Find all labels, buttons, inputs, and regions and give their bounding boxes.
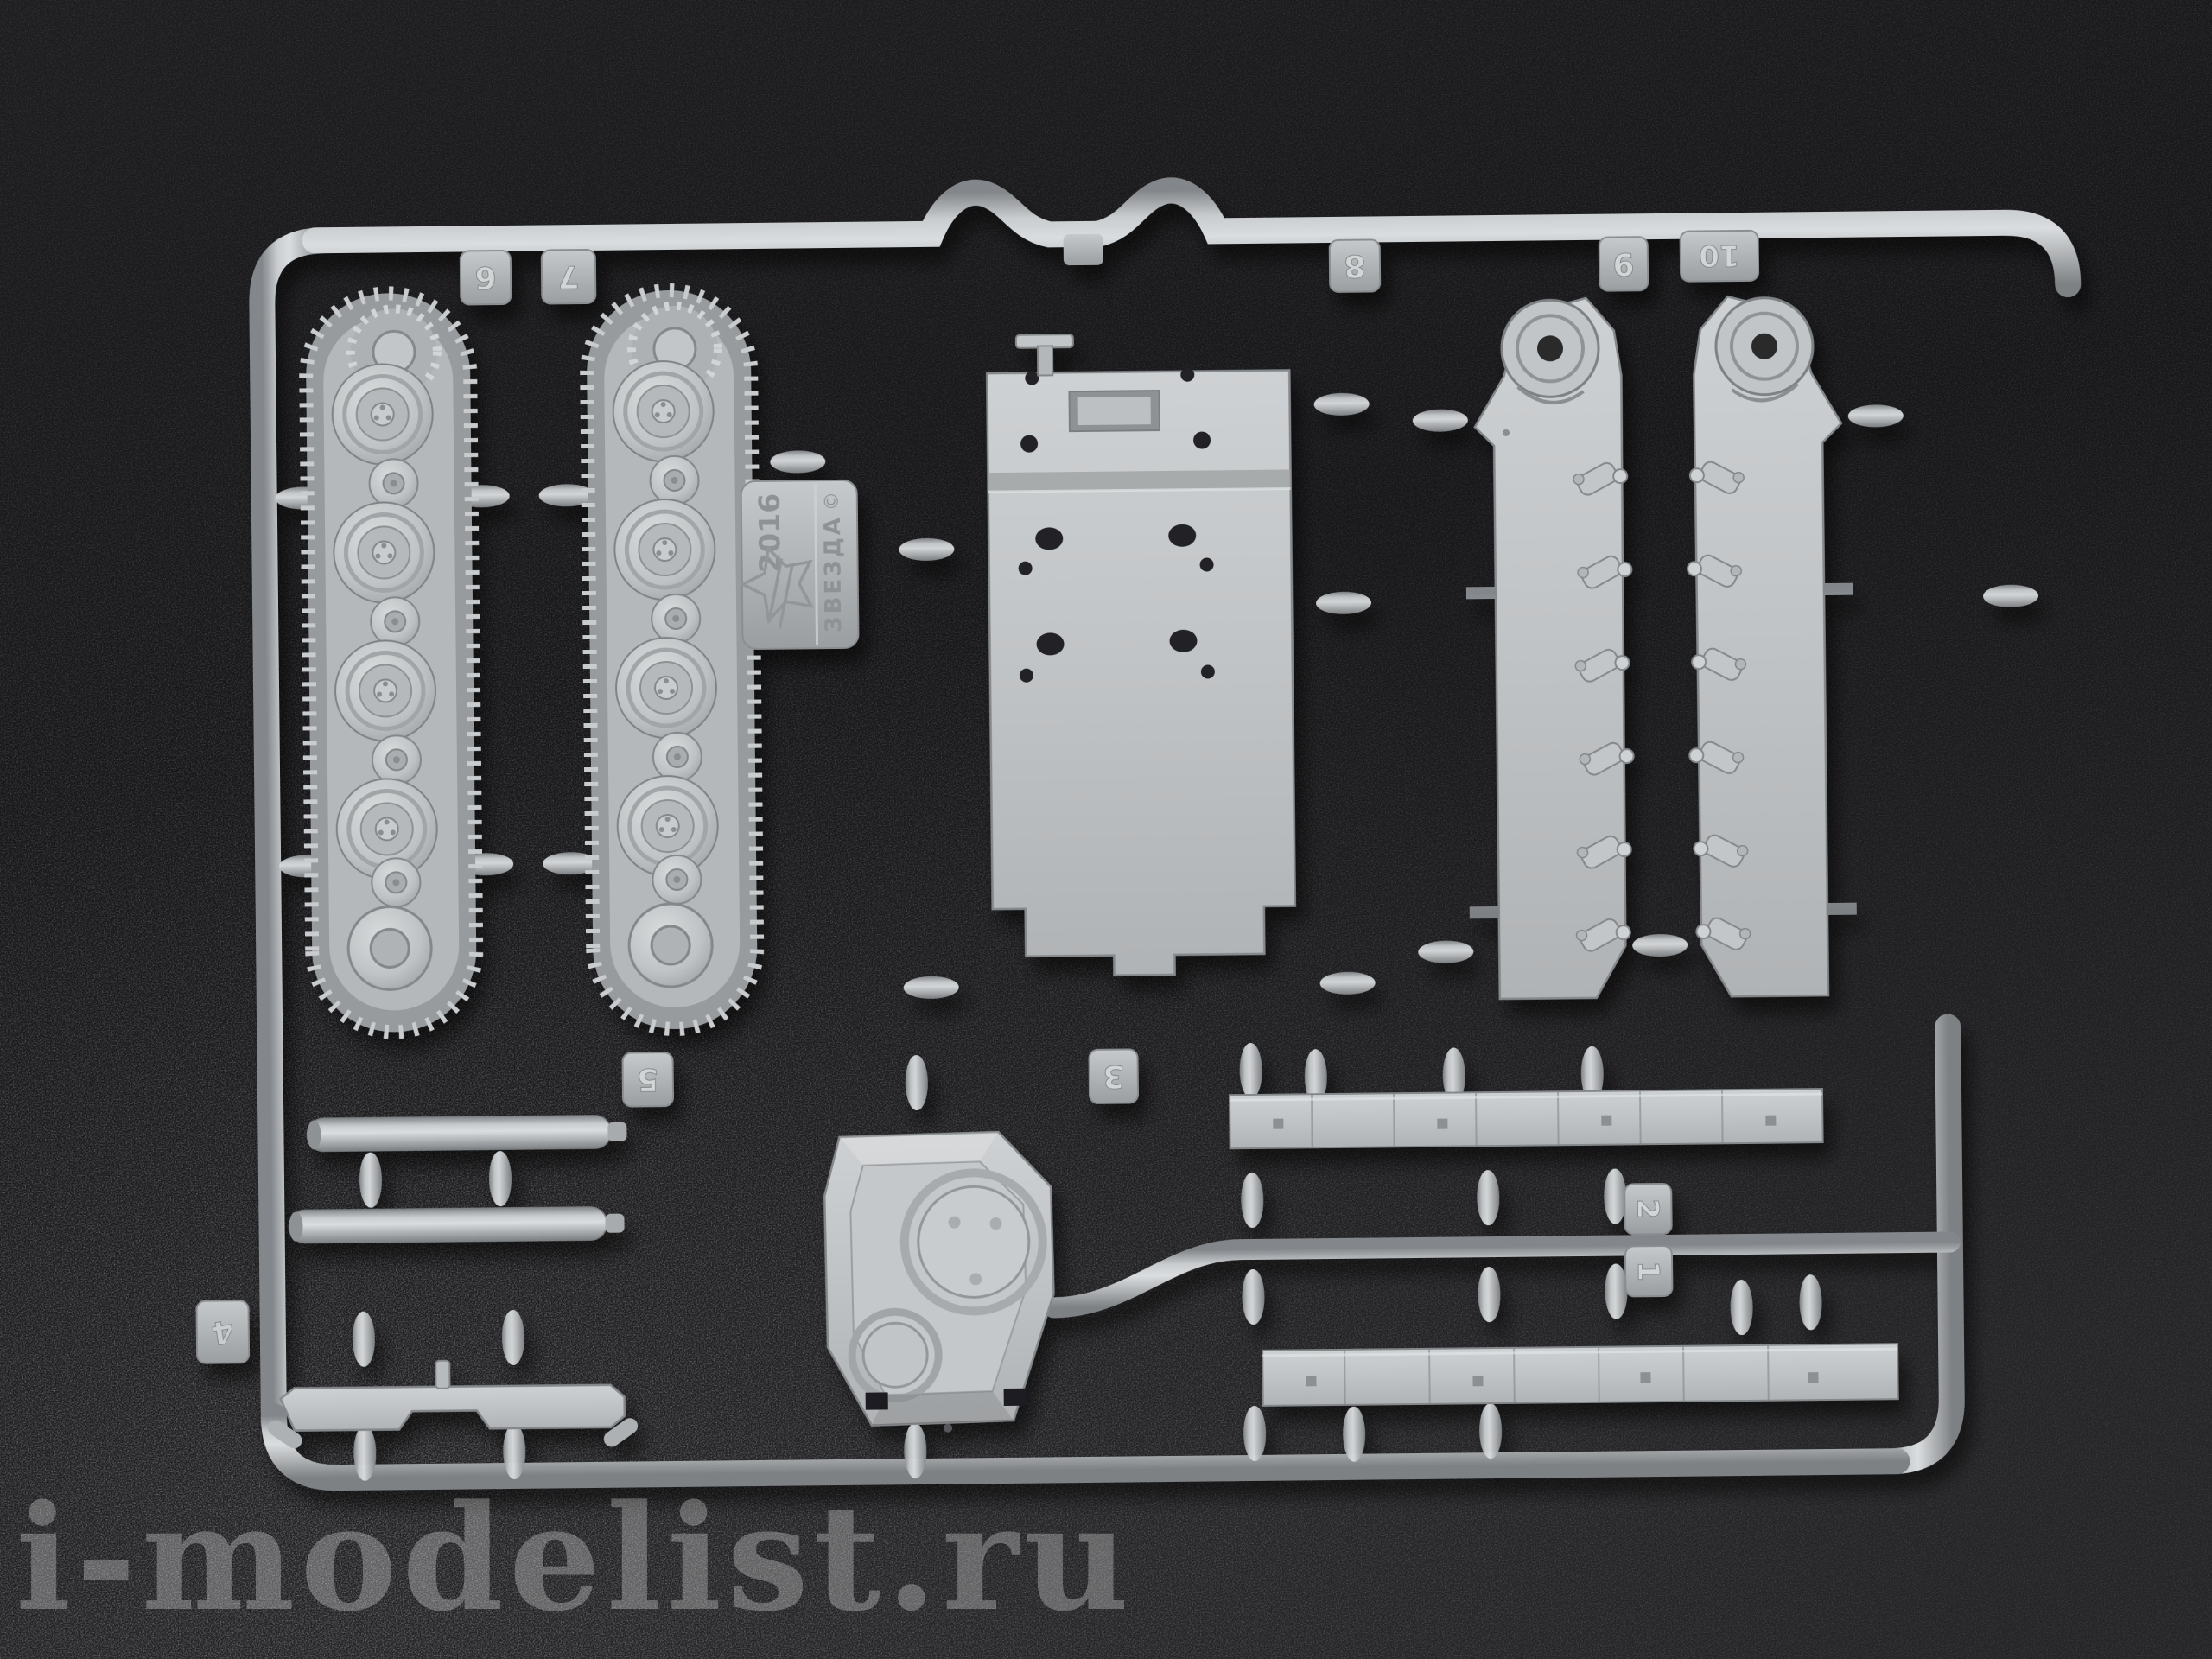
runner-vertical-tab3: [1147, 1035, 1149, 1306]
stub-strip2-right: [1897, 1371, 1951, 1372]
mold-tag-brand: ЗВЕЗДА: [820, 515, 847, 632]
frame-top-center-tab: [1064, 234, 1103, 265]
watermark-text: i-modelist.ru: [16, 1472, 1135, 1643]
part-number-tab-6: 6: [461, 251, 512, 305]
svg-text:7: 7: [557, 258, 579, 294]
svg-text:3: 3: [1103, 1058, 1124, 1094]
part-number-tab-5: 5: [622, 1052, 673, 1107]
mold-tag: 2016 © ЗВЕЗДА: [734, 480, 858, 649]
runner-vertical-b: [862, 237, 871, 1039]
turret-shell: [823, 1131, 1055, 1433]
hull-plate: [987, 332, 1296, 976]
fender-strip-2: [1262, 1344, 1898, 1406]
part-number-tab-2: 2: [1624, 1184, 1672, 1235]
photo-stage: 2016 © ЗВЕЗДА: [0, 0, 2212, 1659]
mold-tag-copyright: ©: [822, 492, 843, 511]
frame-right-edge-upper: [2068, 277, 2075, 1024]
stub-turret-left: [746, 1289, 829, 1290]
runner-vertical-c: [1394, 231, 1402, 1033]
part-number-tab-7: 7: [542, 250, 596, 304]
svg-text:1: 1: [1630, 1261, 1665, 1281]
svg-text:10: 10: [1699, 238, 1740, 272]
part-number-tab-8: 8: [1330, 239, 1381, 292]
part-number-tab-10: 10: [1681, 231, 1759, 282]
stub-fender1-d: [1616, 327, 1697, 327]
svg-text:5: 5: [637, 1061, 658, 1096]
svg-text:9: 9: [1612, 245, 1634, 281]
stub-under-tag: [742, 795, 868, 797]
track-assembly-right: [586, 289, 758, 1030]
runner-vertical-a: [528, 240, 537, 1042]
part-number-tab-3: 3: [1089, 1049, 1138, 1103]
svg-text:6: 6: [474, 259, 496, 295]
part-number-tab-1: 1: [1625, 1246, 1673, 1297]
runner-vertical-turret: [743, 1039, 747, 1473]
runner-vertical-d: [1655, 228, 1663, 1030]
axle-rod-2: [289, 1207, 624, 1243]
fender-strip-1: [1230, 1089, 1823, 1148]
runner-vertical-tab5: [684, 1040, 687, 1287]
svg-text:2: 2: [1630, 1198, 1664, 1219]
axle-rod-1: [307, 1116, 626, 1152]
track-assembly-left: [305, 292, 477, 1033]
svg-text:8: 8: [1344, 248, 1365, 283]
part-number-tab-4: 4: [196, 1300, 249, 1363]
part-number-tab-9: 9: [1599, 237, 1649, 291]
